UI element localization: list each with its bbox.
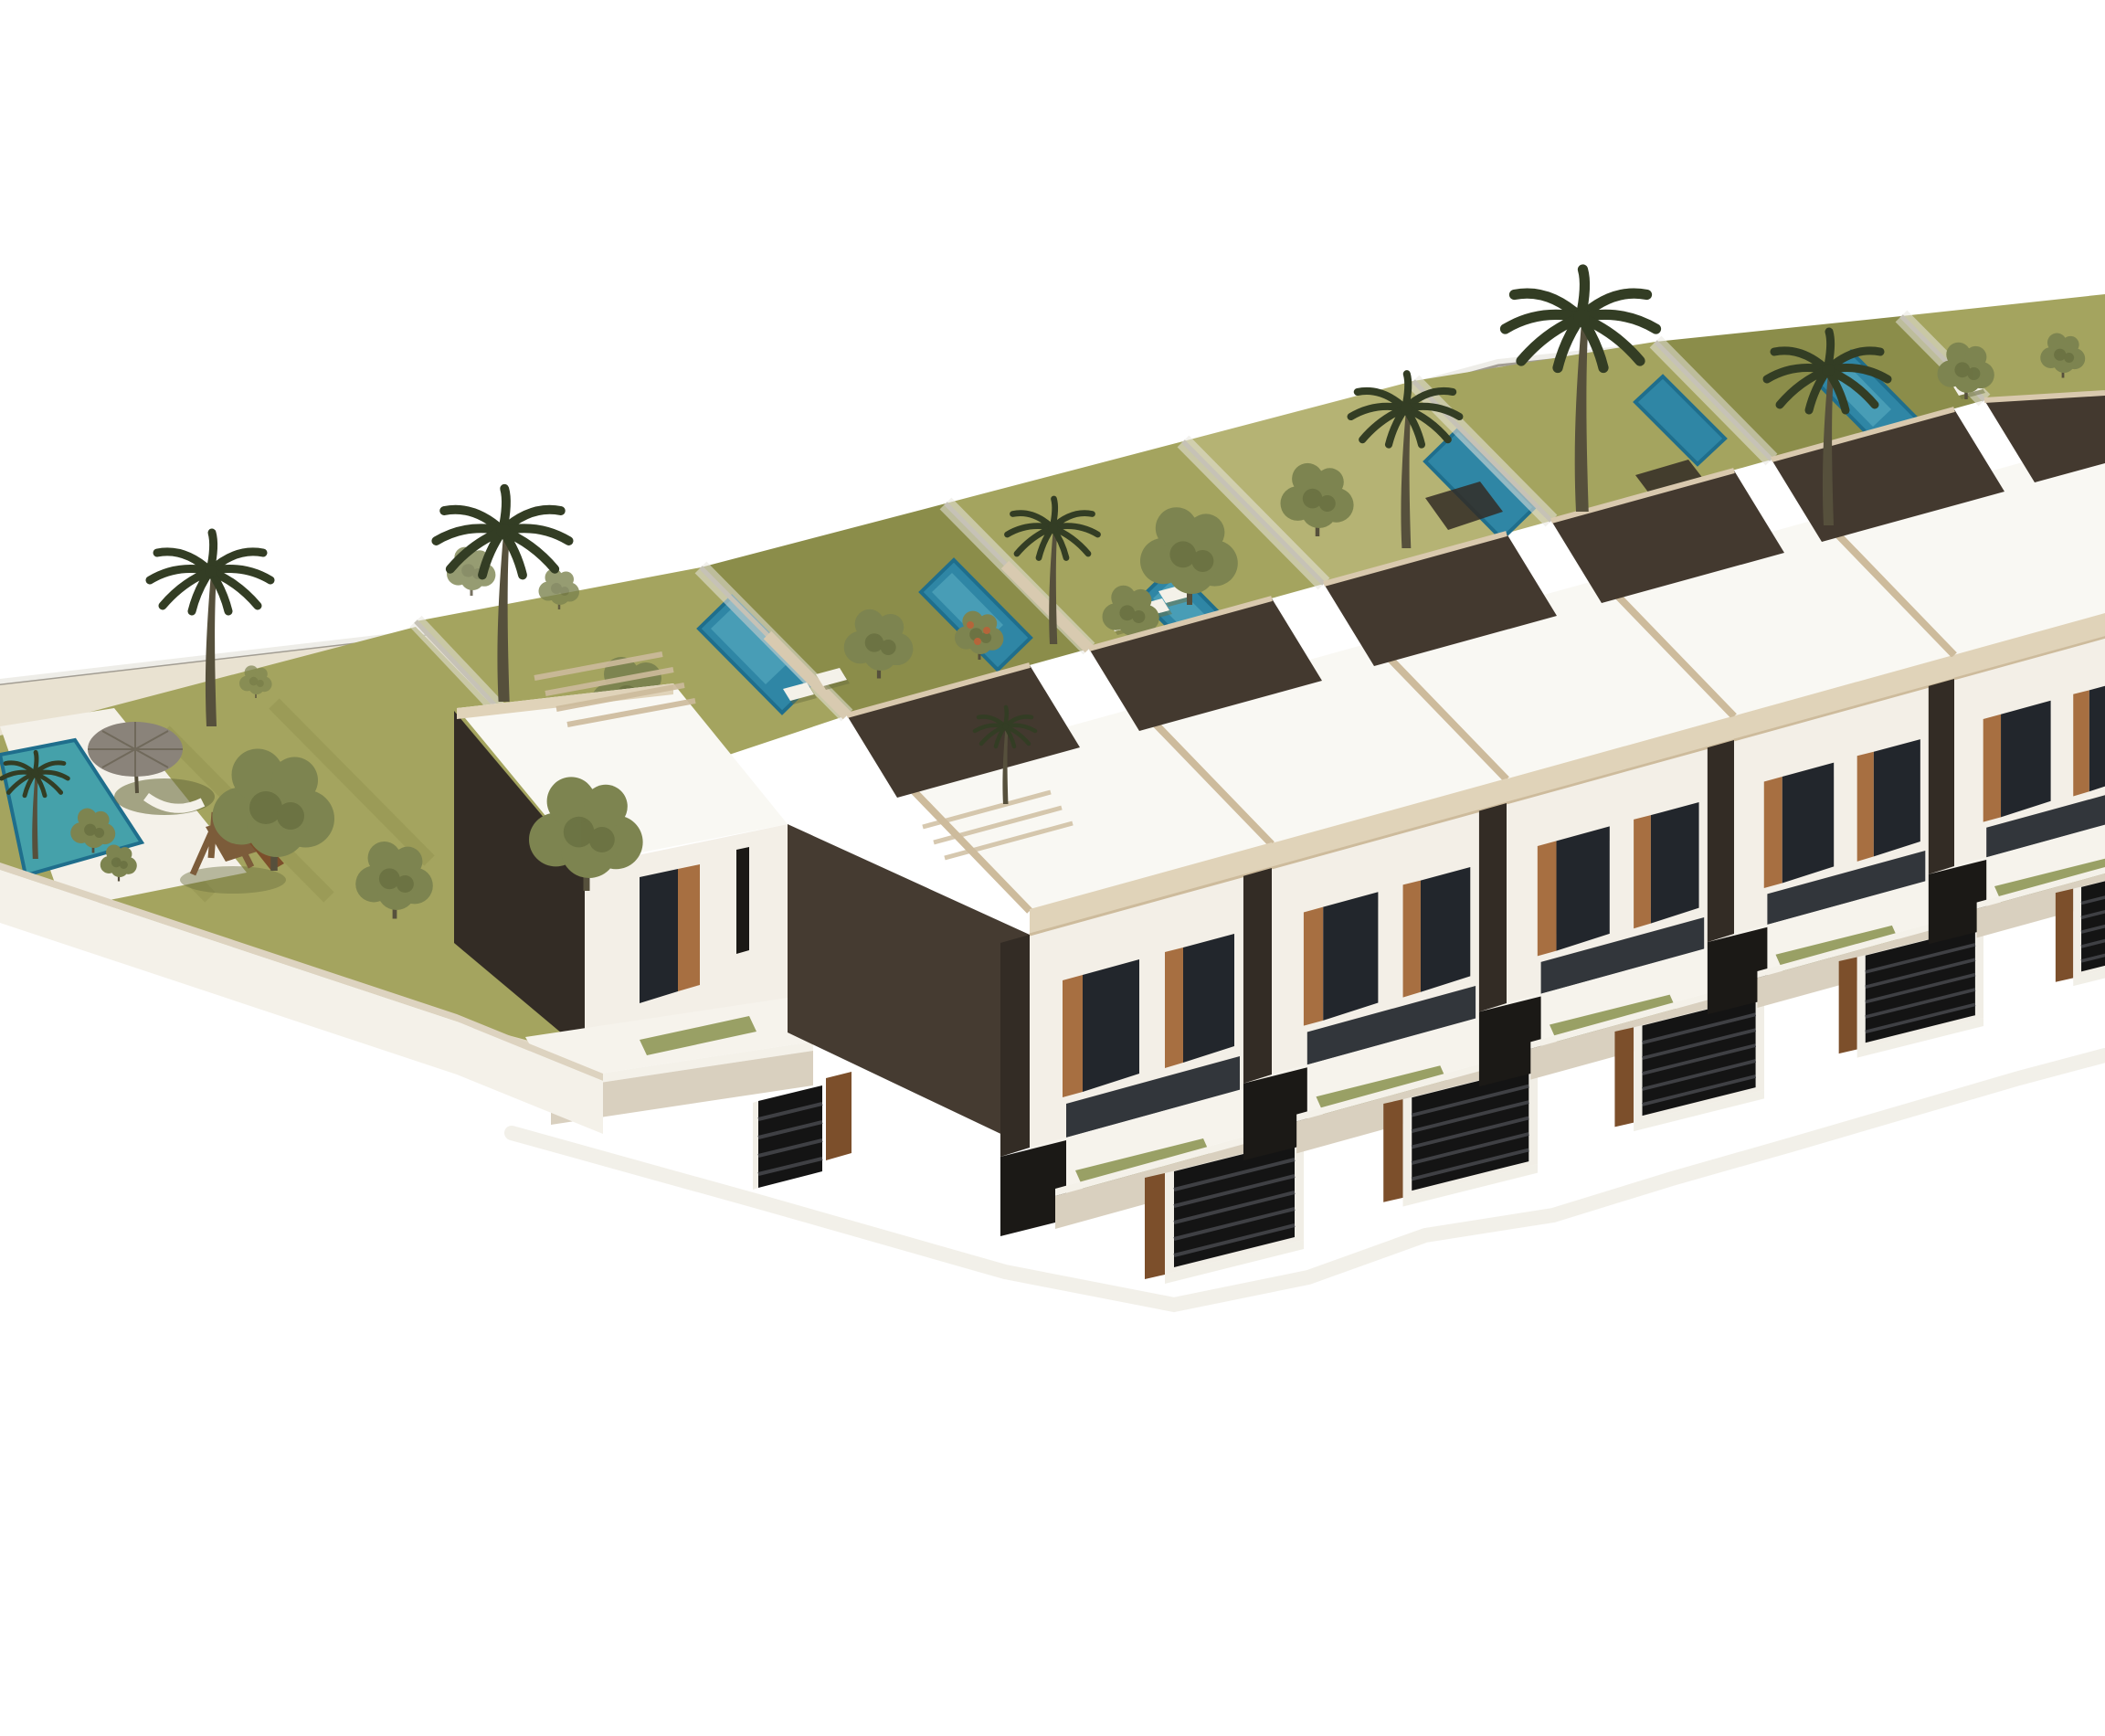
house-window bbox=[640, 869, 678, 1003]
house-gate-post bbox=[753, 1101, 758, 1190]
architectural-render-canvas: Aerial 3D architectural rendering of a m… bbox=[0, 0, 2105, 1736]
render-stage: Aerial 3D architectural rendering of a m… bbox=[0, 0, 2105, 1736]
house-wood-slat-panel bbox=[826, 1072, 852, 1160]
house-entrance-recess bbox=[736, 847, 749, 954]
house-wood-cladding bbox=[678, 864, 700, 991]
